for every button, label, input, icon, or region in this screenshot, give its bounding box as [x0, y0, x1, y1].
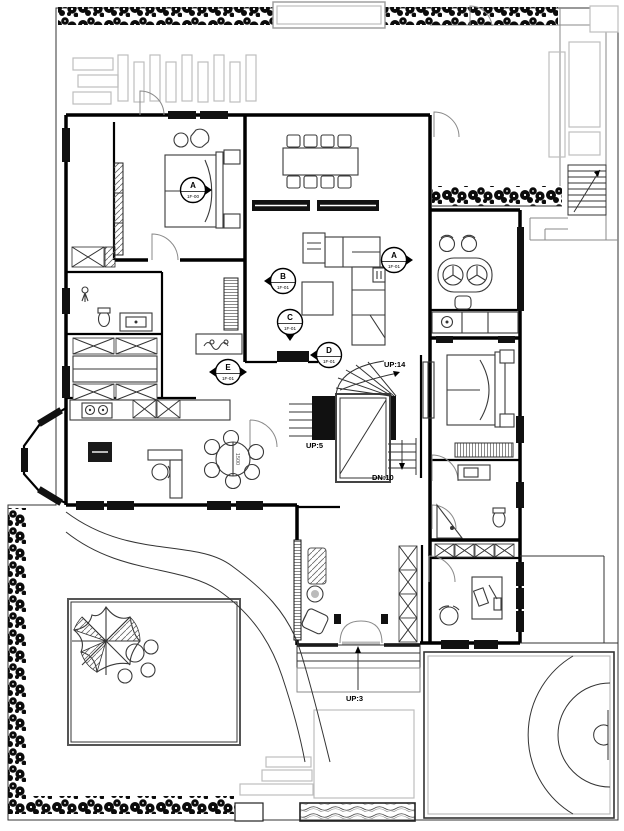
bathroom-2 [435, 465, 514, 557]
svg-text:A: A [391, 251, 397, 260]
shower-icon [437, 505, 462, 538]
study [439, 577, 502, 625]
hallway [196, 278, 242, 354]
toilet-icon [493, 508, 505, 527]
svg-text:1F-01: 1F-01 [284, 326, 296, 331]
master-bedroom [72, 129, 240, 267]
coffee-table-icon [302, 282, 333, 315]
slatted-closet [455, 443, 513, 457]
entry-porch: UP:3 [235, 645, 420, 821]
svg-text:B: B [280, 272, 286, 281]
entry-double-door [334, 614, 388, 643]
hedge-garden-left [8, 508, 26, 814]
vanity-sink-icon [120, 313, 152, 331]
wardrobe-strip [114, 163, 123, 255]
garden [66, 512, 330, 762]
basketball-court [424, 652, 614, 818]
hedge-garden-bottom [8, 796, 236, 814]
svg-text:1F-01: 1F-01 [222, 376, 234, 381]
parasol-icon [72, 607, 140, 675]
svg-text:C: C [287, 313, 293, 322]
tea-tray-icon [443, 265, 487, 285]
shower-head-icon [82, 287, 88, 302]
svg-text:1F-01: 1F-01 [277, 285, 289, 290]
svg-text:1F-00: 1F-00 [187, 194, 199, 199]
bathroom-left [82, 287, 152, 331]
lawn-patio [68, 599, 240, 745]
tv-console [277, 351, 309, 362]
stair-label-dn10: DN:10 [372, 473, 394, 482]
walk-in-closet [73, 338, 157, 400]
elevation-marker-e: E 1F-01 [209, 359, 247, 385]
hedge-mid-right [432, 186, 562, 206]
terrace-lounge-furniture [549, 42, 600, 157]
tea-room [432, 235, 518, 333]
elevation-marker-a-living: A 1F-01 [382, 247, 414, 273]
deck-boards [73, 55, 256, 104]
toilet-icon [98, 308, 110, 327]
round-table-icon: 1500 [205, 431, 264, 489]
desk-icon [472, 577, 502, 619]
radiator-icon [224, 278, 238, 330]
bay-window [21, 407, 112, 505]
planter-box [300, 803, 415, 821]
entry-rug [308, 548, 326, 584]
main-staircase: UP:14 UP:5 DN:10 [289, 360, 416, 482]
foyer [301, 546, 417, 642]
svg-text:D: D [326, 346, 332, 355]
foyer-closet [399, 546, 417, 642]
stove-icon [82, 403, 112, 418]
table-dimension-label: 1500 [234, 453, 240, 465]
floor-plan-drawing: 1500 UP:14 UP:5 DN:10 [0, 0, 624, 831]
dining-room [283, 135, 358, 188]
desk-chair-icon [439, 606, 459, 625]
kitchen [70, 400, 230, 420]
elevation-marker-b: B 1F-01 [264, 268, 296, 294]
svg-text:1F-01: 1F-01 [388, 264, 400, 269]
armchair-icon [174, 129, 209, 147]
svg-text:E: E [225, 363, 231, 372]
svg-text:1F-01: 1F-01 [323, 359, 335, 364]
console-table-icon [196, 334, 242, 354]
foyer-west-window-slats [294, 540, 301, 640]
svg-text:A: A [190, 181, 196, 190]
bedroom-2 [423, 350, 514, 457]
stair-label-up14: UP:14 [384, 360, 406, 369]
stair-label-up3: UP:3 [346, 694, 363, 703]
elevation-marker-c: C 1F-01 [277, 310, 303, 342]
elevation-marker-d: D 1F-01 [310, 342, 342, 368]
dining-table-icon [283, 135, 358, 188]
stair-label-up5: UP:5 [306, 441, 323, 450]
armchair-icon [301, 608, 330, 636]
breakfast-area: 1500 [148, 431, 264, 499]
desk-nook-icon [148, 450, 182, 498]
bed-icon [447, 350, 514, 427]
floor-plan-canvas: 1500 UP:14 UP:5 DN:10 [0, 0, 624, 831]
